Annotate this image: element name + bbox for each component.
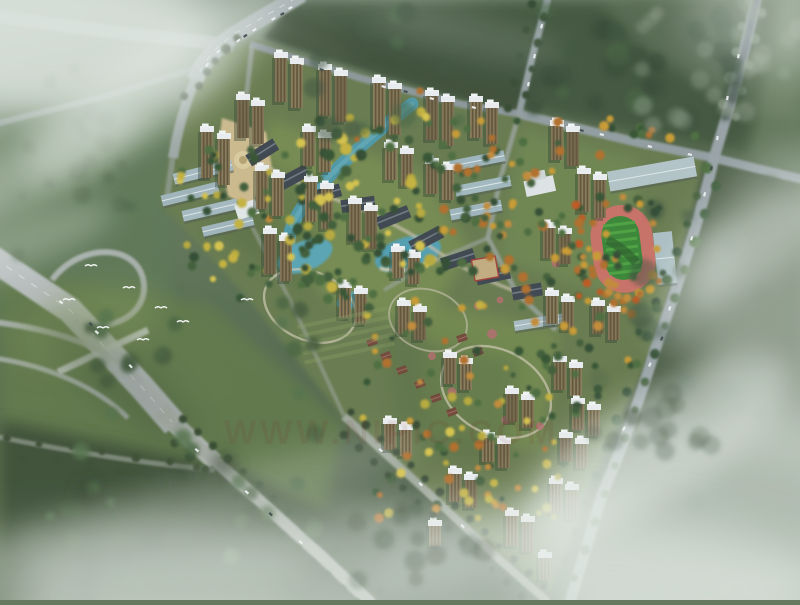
svg-text:WWW.NIPIC.COM: WWW.NIPIC.COM	[224, 414, 559, 452]
